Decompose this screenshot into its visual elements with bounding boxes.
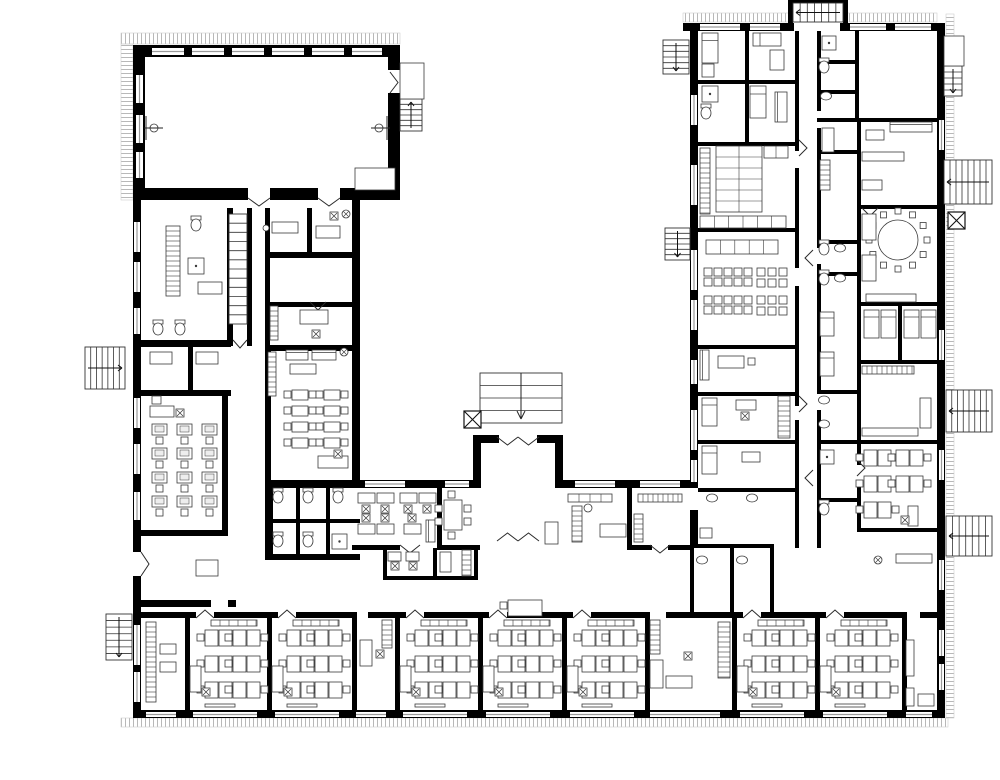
table [355, 168, 395, 190]
wall [265, 480, 360, 488]
wall [795, 31, 799, 151]
table [360, 640, 372, 666]
wall [395, 612, 400, 710]
wall [732, 612, 737, 710]
bed [921, 310, 936, 338]
chair [748, 358, 755, 365]
shelf [650, 620, 660, 654]
shelf [146, 622, 156, 702]
table [862, 255, 876, 281]
toilet [701, 104, 711, 119]
stair [793, 3, 843, 22]
table [862, 214, 876, 240]
shelf [270, 306, 278, 340]
toilet [273, 488, 283, 503]
wall [388, 45, 400, 70]
table [736, 400, 756, 410]
table [196, 352, 218, 364]
wall [562, 612, 567, 710]
wall [817, 410, 821, 548]
wall [815, 612, 820, 710]
eave-strip [121, 718, 948, 727]
wall [698, 345, 795, 349]
office-chair [376, 650, 384, 658]
wall [307, 208, 312, 258]
table [718, 356, 744, 368]
table [152, 396, 161, 404]
stair [946, 390, 992, 432]
shaft-marker [948, 212, 965, 229]
table [545, 522, 558, 544]
office-chair [901, 516, 909, 524]
table [419, 493, 436, 503]
wall [473, 435, 499, 443]
sink [707, 494, 718, 502]
bed [820, 352, 834, 376]
eave-strip [121, 44, 133, 200]
stair [106, 614, 132, 660]
sink [819, 420, 830, 428]
toilet [819, 270, 829, 285]
sink [835, 244, 846, 252]
shelf [718, 622, 730, 678]
table [906, 688, 914, 706]
wall [844, 612, 905, 618]
bed [702, 446, 717, 474]
shelf [638, 494, 682, 502]
counter [568, 494, 612, 502]
toilet [303, 488, 313, 503]
stair [944, 66, 962, 96]
wall [698, 228, 795, 232]
classrooms [190, 620, 898, 707]
wall [222, 392, 228, 536]
wall [855, 31, 859, 118]
wall [383, 548, 387, 580]
office-chair [408, 514, 416, 522]
wall [368, 612, 406, 618]
table [944, 36, 964, 66]
table [406, 552, 419, 561]
wall [857, 302, 937, 306]
sofa [286, 350, 308, 360]
shelf [634, 514, 643, 542]
table [866, 130, 884, 140]
chair [464, 505, 471, 512]
table [742, 452, 760, 462]
sofa [890, 122, 932, 132]
counter [700, 216, 786, 228]
wall [668, 545, 690, 550]
wall [141, 390, 231, 396]
office-chair [404, 505, 412, 513]
sink [819, 396, 830, 404]
counter [764, 146, 788, 158]
wall [141, 530, 228, 536]
table [862, 180, 882, 190]
table [702, 64, 714, 77]
chair [464, 518, 471, 525]
shelf [778, 396, 790, 438]
shelf [268, 352, 276, 396]
sofa [426, 520, 435, 542]
wall [296, 612, 352, 618]
table [862, 428, 918, 436]
wall [857, 305, 861, 360]
wall [352, 612, 357, 710]
shelf [700, 148, 710, 214]
stair [400, 99, 422, 131]
sofa [700, 350, 709, 380]
toilet [819, 58, 829, 73]
wall [627, 545, 652, 550]
table [377, 524, 394, 534]
table [272, 222, 298, 233]
office-chair [741, 412, 749, 420]
plant [874, 556, 882, 564]
wall [627, 488, 632, 545]
table [358, 524, 375, 534]
toilet [153, 320, 163, 335]
chair [435, 505, 442, 512]
wall [898, 305, 902, 360]
sink [737, 556, 748, 564]
wall [788, 2, 793, 23]
chair [435, 518, 442, 525]
table [150, 406, 174, 417]
bed [820, 312, 834, 336]
wall [265, 302, 355, 307]
table [300, 310, 328, 324]
round-table [584, 504, 592, 512]
wall [795, 168, 799, 268]
bed [750, 86, 766, 118]
eave-strip [121, 33, 400, 44]
table [316, 226, 340, 238]
toilet [303, 532, 313, 547]
table [150, 352, 172, 364]
wall [817, 390, 857, 394]
wall [698, 440, 795, 444]
table [920, 398, 931, 428]
sink [697, 556, 708, 564]
shelf [382, 620, 392, 648]
office-chair [330, 212, 338, 220]
office-chair [334, 450, 342, 458]
sofa [775, 92, 787, 122]
wall [795, 420, 799, 548]
stair [663, 40, 689, 74]
wall [265, 519, 360, 523]
shelf [166, 226, 180, 296]
stair [944, 160, 992, 204]
table [160, 662, 176, 672]
wall [591, 612, 650, 618]
wall [857, 528, 937, 532]
wall [745, 80, 749, 142]
stair [85, 347, 125, 389]
wall [133, 600, 211, 607]
stair [665, 228, 690, 260]
table [444, 500, 462, 530]
wall [352, 200, 360, 488]
wall [437, 488, 442, 545]
table [866, 294, 916, 302]
table [198, 282, 222, 294]
wall [745, 28, 749, 80]
wall [141, 340, 231, 347]
table [600, 524, 626, 537]
shower [820, 450, 834, 464]
office-chair [362, 505, 370, 513]
table [377, 493, 394, 503]
table [650, 660, 663, 688]
wall [698, 392, 795, 396]
shower [332, 534, 347, 549]
chair [448, 491, 455, 498]
wall [185, 612, 190, 710]
wall [474, 548, 478, 580]
wall [817, 440, 857, 444]
wall [770, 548, 774, 612]
wall [383, 576, 478, 580]
table [862, 152, 904, 161]
plant [340, 348, 348, 356]
eave-strip [946, 14, 954, 718]
wall [247, 208, 252, 346]
shower [702, 86, 718, 102]
bed [702, 33, 718, 63]
wall [857, 118, 861, 305]
table [770, 50, 784, 70]
wall [857, 440, 937, 444]
table [358, 493, 375, 503]
bed [881, 310, 896, 338]
shelf [820, 160, 830, 190]
chair [500, 602, 507, 609]
shelf [462, 550, 471, 576]
wall [857, 360, 937, 364]
sink [835, 274, 846, 282]
wall [437, 545, 480, 550]
table [290, 364, 316, 374]
sofa [312, 350, 336, 360]
counter [706, 240, 778, 254]
office-chair [381, 505, 389, 513]
wall [666, 612, 743, 618]
wall [537, 435, 563, 443]
toilet [819, 240, 829, 255]
stair [946, 516, 992, 556]
wall [265, 554, 360, 560]
table [440, 552, 451, 572]
table [404, 524, 421, 534]
stair [229, 214, 247, 324]
toilet [175, 320, 185, 335]
table [822, 128, 834, 152]
office-chair [423, 505, 431, 513]
wall [188, 340, 193, 396]
toilet [333, 488, 343, 503]
office-chair [684, 652, 692, 660]
bed [702, 398, 717, 426]
wall [690, 544, 774, 548]
counter [716, 146, 762, 212]
office-chair [312, 330, 320, 338]
shelf [572, 506, 582, 542]
wall [645, 612, 650, 710]
shelf [862, 366, 914, 374]
office-chair [362, 514, 370, 522]
wall [270, 188, 318, 200]
wall [690, 548, 694, 612]
bed [864, 310, 879, 338]
bed [904, 310, 919, 338]
office-chair [176, 409, 184, 417]
wall [730, 548, 734, 612]
wall [478, 612, 483, 710]
sink [821, 92, 832, 100]
table [388, 552, 401, 561]
table [700, 528, 712, 538]
chair [448, 532, 455, 539]
shower [188, 258, 204, 274]
sink [747, 494, 758, 502]
bed [753, 33, 781, 46]
round-table [878, 220, 918, 260]
toilet [191, 216, 201, 231]
toilet [819, 500, 829, 515]
office-chair [391, 562, 399, 570]
wall [857, 482, 861, 528]
table [400, 493, 417, 503]
wall [795, 286, 799, 406]
wall [698, 488, 795, 492]
table [906, 640, 914, 676]
table [196, 560, 218, 576]
table [400, 63, 424, 99]
floor-plan [0, 0, 1000, 780]
wall [433, 548, 437, 580]
toilet [273, 532, 283, 547]
table [160, 644, 176, 654]
wall [920, 612, 937, 618]
table [666, 676, 692, 688]
round-table [263, 225, 269, 231]
wall [817, 118, 937, 122]
wall [843, 2, 848, 23]
shaft-marker [464, 411, 481, 428]
wall [690, 510, 698, 548]
table [918, 694, 934, 706]
wall [698, 142, 795, 146]
office-chair [381, 514, 389, 522]
wall [857, 360, 861, 440]
table [896, 554, 932, 563]
shower [822, 36, 836, 50]
plant [342, 210, 350, 218]
wall [352, 545, 400, 550]
wall [228, 600, 236, 607]
floor-plan-page [0, 0, 1000, 780]
table [318, 456, 348, 468]
office-chair [409, 562, 417, 570]
table [508, 600, 542, 616]
table [908, 506, 918, 526]
wall [133, 188, 248, 200]
